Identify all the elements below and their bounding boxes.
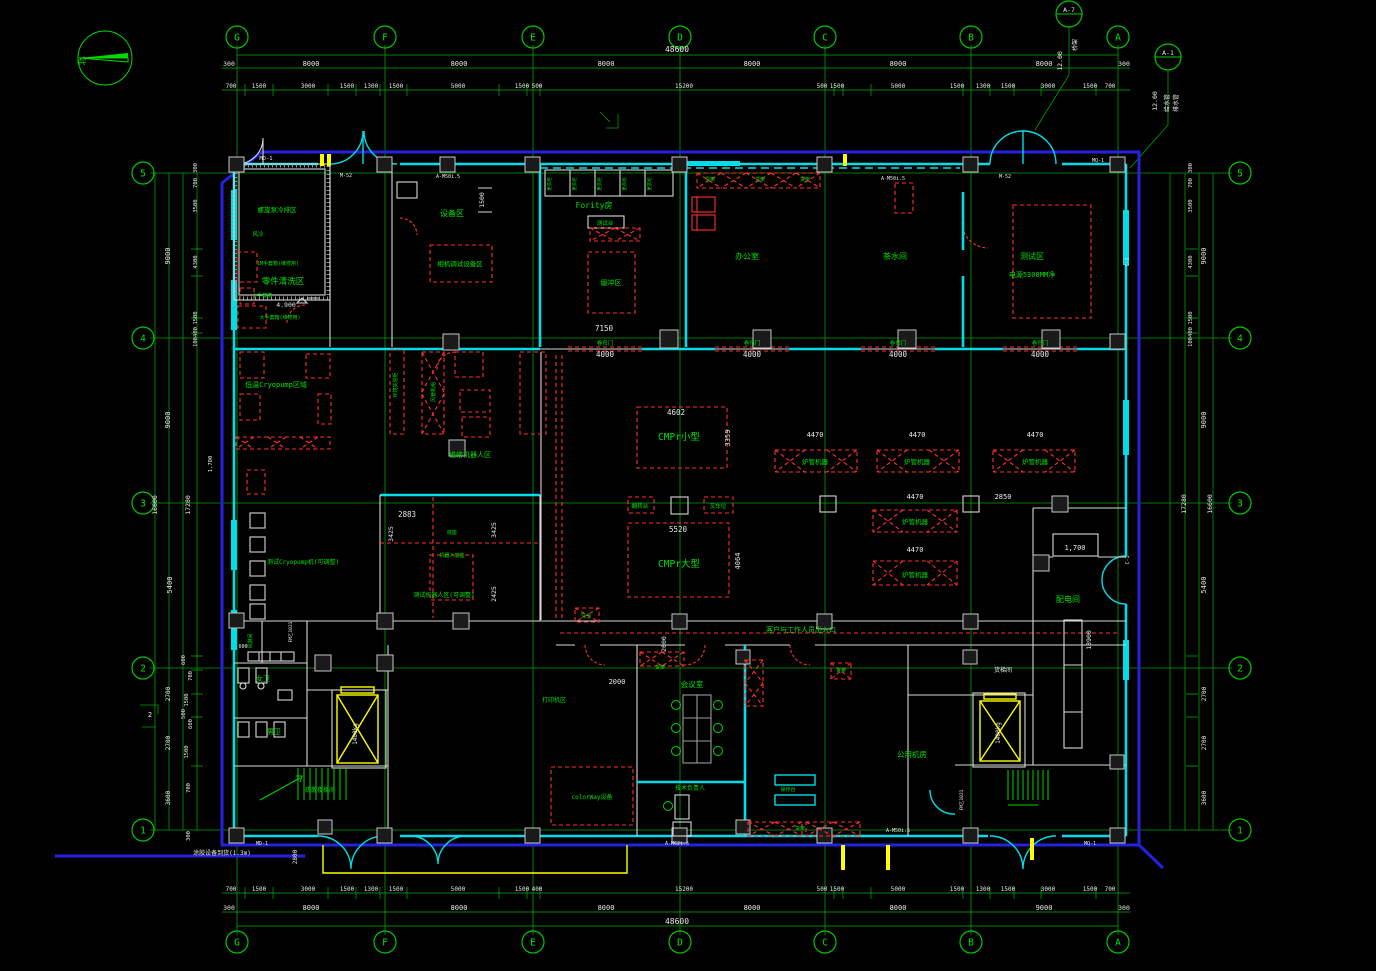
plan-label: 1500 [1083, 83, 1098, 90]
plan-label: 1500 [830, 886, 845, 893]
plan-label: 1,700 [1064, 544, 1085, 552]
plan-label: 货架 [836, 667, 846, 674]
svg-text:B: B [968, 938, 974, 949]
plan-label: 2700 [165, 686, 172, 701]
plan-label: 4470 [1027, 431, 1044, 439]
plan-label: 1300 [976, 886, 991, 893]
plan-label: 1500 [389, 83, 404, 90]
plan-label: 更衣柜 [546, 177, 553, 191]
plan-label: 8000 [744, 60, 761, 68]
plan-label: 9000 [1036, 904, 1053, 912]
plan-label: 1500 [184, 693, 190, 706]
plan-label: 5000 [451, 83, 466, 90]
plan-label: 1500 [515, 83, 530, 90]
plan-label: 1500 [389, 886, 404, 893]
plan-label: 炉管机器 [902, 570, 929, 579]
plan-label: 1300 [364, 886, 379, 893]
plan-label: 300 [1118, 60, 1130, 68]
plan-label: 维修机器人区 [449, 450, 491, 459]
stairs-bottom-right [1008, 770, 1048, 805]
grid-bubble: E [522, 26, 544, 48]
svg-text:D: D [677, 33, 683, 44]
plan-label: 1500 [340, 83, 355, 90]
plan-label: 茶水间 [883, 251, 907, 261]
plan-label: C-1 [1125, 257, 1131, 266]
plan-label: 1500 [252, 83, 267, 90]
plan-label: 排水管 [1172, 94, 1180, 112]
plan-label: 测试Cryopump机(可调整) [267, 558, 339, 566]
plan-label: 配电间 [1056, 594, 1080, 604]
plan-label: MQ-1 [1092, 158, 1104, 164]
plan-label: 8000 [890, 904, 907, 912]
plan-label: 1500 [252, 886, 267, 893]
window [680, 161, 740, 166]
plan-label: 9000 [164, 248, 172, 265]
plan-label: 电源5300MM净 [1009, 270, 1055, 279]
plan-label: 测试机器人区(可调整) [413, 591, 474, 599]
plan-label: 缓冲区 [601, 278, 622, 287]
svg-text:A: A [1115, 938, 1121, 949]
plan-label: 1500 [950, 886, 965, 893]
svg-text:5: 5 [140, 169, 146, 180]
plan-label: 更衣柜 [646, 177, 653, 191]
plan-label: 货梯间 [994, 666, 1012, 674]
plan-label: 9000 [164, 412, 172, 429]
plan-label: 技术负责人 [675, 784, 705, 792]
plan-label: 4000 [889, 350, 908, 359]
svg-text:B: B [968, 33, 974, 44]
svg-text:2: 2 [140, 664, 146, 675]
plan-label: 货架 [655, 664, 665, 671]
svg-text:A: A [1115, 33, 1121, 44]
plan-label: 4300 [1188, 255, 1194, 268]
plan-label: 3000 [301, 83, 316, 90]
plan-label: 500 [181, 709, 187, 719]
svg-text:4: 4 [140, 334, 146, 345]
plan-label: 风管机组 [430, 382, 437, 402]
canopy-line [323, 845, 627, 873]
plan-label: 15200 [675, 83, 693, 90]
grid-bubble: B [960, 26, 982, 48]
plan-label: 1500 [1001, 886, 1016, 893]
plan-label: 17280 [1180, 494, 1188, 514]
plan-label: 1300 [976, 83, 991, 90]
plan-label: 客户与工作人员出入口 [766, 625, 836, 634]
doors [237, 131, 1126, 869]
plan-label: 炉管机器 [904, 457, 931, 466]
plan-label: 48600 [665, 45, 689, 54]
plan-label: 500 [532, 83, 543, 90]
plan-label: 货架 [705, 176, 715, 183]
window [231, 520, 237, 570]
plan-label: 3000 [1041, 83, 1056, 90]
plan-label: 1400kg [995, 722, 1002, 744]
plan-label: Fority房 [576, 200, 613, 210]
plan-label: 400 [532, 886, 543, 893]
plan-label: 700 [226, 886, 237, 893]
plan-label: A-M62i.5 [665, 841, 689, 847]
plan-label: 1500 [1083, 886, 1098, 893]
plan-label: 炉管机器 [1022, 457, 1049, 466]
plan-label: 更衣柜 [571, 177, 578, 191]
plan-label: 2700 [1201, 735, 1208, 750]
plan-label: 疏散楼梯间 [305, 786, 335, 794]
plan-label: 3425 [387, 526, 395, 542]
plan-label: 4470 [907, 546, 924, 554]
plan-label: 7150 [595, 324, 614, 333]
plan-label: 5000 [891, 886, 906, 893]
stairs-bottom-left [260, 768, 346, 800]
plan-label: 叉车 [580, 612, 592, 620]
plan-label: 12.00 [1151, 91, 1159, 111]
plan-label: 炉管机器 [802, 457, 829, 466]
plan-label: A-M50i.5 [436, 174, 460, 180]
plan-label: 3500 [1188, 199, 1194, 212]
svg-text:F: F [382, 938, 388, 949]
plan-label: 4000 [1031, 350, 1050, 359]
plan-label: 打印机区 [542, 696, 566, 704]
grid-bubble: 1 [1229, 819, 1251, 841]
plan-label: 700 [188, 671, 194, 681]
svg-text:F: F [382, 33, 388, 44]
plan-label: 测试台 [597, 219, 614, 227]
plan-label: 男卫 [267, 728, 281, 736]
plan-label: 大手套箱(维修用) [259, 314, 300, 321]
grid-bubble: A [1107, 26, 1129, 48]
plan-label: C-1 [1125, 555, 1131, 564]
plan-label: 卷帘门 [1032, 339, 1049, 347]
plan-label: 9000 [1200, 412, 1208, 429]
plan-label: M-52 [340, 173, 352, 179]
plan-label: colorWay设备 [572, 793, 613, 801]
plan-label: 100 [1188, 337, 1194, 347]
plan-label: 48600 [665, 917, 689, 926]
plan-label: 3425 [490, 522, 498, 538]
plan-label: 4470 [907, 493, 924, 501]
section-marker: A-1 [1155, 44, 1181, 70]
floor-plan-canvas: GGFFEEDDCCBBAA5544332211 A-7A-1 48600300… [0, 0, 1376, 971]
plan-label: 300 [186, 831, 192, 841]
plan-label: 12.00 [1056, 51, 1064, 71]
plan-label: 叉车位 [710, 502, 727, 510]
grid-bubble: 3 [1229, 492, 1251, 514]
plan-label: 3000 [1041, 886, 1056, 893]
plan-label: 4064 [734, 553, 742, 570]
plan-label: 1500 [478, 192, 486, 208]
plan-label: 更衣柜 [621, 177, 628, 191]
plan-label: 8000 [303, 904, 320, 912]
plan-label: 700 [1105, 886, 1116, 893]
grid-bubble: 4 [1229, 327, 1251, 349]
plan-label: 8000 [598, 60, 615, 68]
plan-label: 4000 [743, 350, 762, 359]
plan-label: 3500 [193, 199, 199, 212]
plan-label: 螺旋泵冷排区 [258, 205, 298, 214]
plan-label: 15200 [675, 886, 693, 893]
plan-label: 2850 [995, 493, 1012, 501]
plan-label: 8000 [598, 904, 615, 912]
conference-table [672, 695, 723, 763]
plan-label: 桥架 [1071, 39, 1079, 51]
plan-label: 500 [817, 886, 828, 893]
plan-label: 卷帘门 [890, 339, 907, 347]
plan-label: 1M手套箱(维修用) [257, 260, 299, 267]
plan-label: 设备区 [440, 208, 464, 218]
plan-label: 涂胶设备到货(1.3m) [193, 849, 251, 857]
plan-label: 1500 [830, 83, 845, 90]
plan-label: 1500 [950, 83, 965, 90]
plan-label: 5000 [451, 886, 466, 893]
plan-label: 300 [1188, 163, 1194, 173]
grid-bubble: 2 [1229, 657, 1251, 679]
plan-label: 测试区 [1020, 251, 1044, 261]
plan-label: 1400kg [352, 723, 359, 745]
plan-label: 5520 [669, 525, 688, 534]
plan-label: 办公室 [735, 251, 759, 261]
plan-label: MD-1 [256, 841, 268, 847]
plan-label: 300 [193, 163, 199, 173]
grid-bubble: 5 [1229, 162, 1251, 184]
plan-label: 4000 [596, 350, 615, 359]
plan-label: 2000 [660, 636, 668, 652]
plan-label: 3600 [1201, 790, 1208, 805]
plan-label: 2700 [1201, 686, 1208, 701]
plan-label: 600 [188, 719, 194, 729]
svg-text:3: 3 [1237, 499, 1243, 510]
plan-label: 1500 [515, 886, 530, 893]
svg-text:A-7: A-7 [1063, 6, 1075, 14]
plan-label: 4602 [667, 408, 685, 417]
plan-label: 8000 [451, 904, 468, 912]
plan-label: 翻转台 [632, 502, 649, 510]
plan-label: 2700 [165, 735, 172, 750]
grid-bubble: G [226, 26, 248, 48]
plan-label: 4470 [909, 431, 926, 439]
plan-label: 300 [223, 904, 235, 912]
plan-label: 4300 [193, 255, 199, 268]
svg-text:G: G [234, 938, 240, 949]
plan-label: 零件清洗区 [262, 276, 305, 287]
plan-label: MD-1 [259, 156, 272, 162]
plan-label: 1500 [184, 745, 190, 758]
plan-label: 8000 [1036, 60, 1053, 68]
plan-label: 会议室 [681, 679, 704, 689]
plan-label: 16600 [151, 495, 159, 515]
svg-text:1: 1 [140, 826, 146, 837]
plan-label: 3359 [724, 430, 732, 447]
plan-label: 9000 [1200, 248, 1208, 265]
plan-label: 4470 [807, 431, 824, 439]
plan-label: 2883 [398, 510, 416, 519]
plan-label: 给水管 [1163, 94, 1171, 112]
plan-label: 2425 [490, 586, 498, 602]
svg-text:C: C [822, 33, 828, 44]
grid-bubble: F [374, 26, 396, 48]
plan-label: 2800 [292, 849, 299, 864]
svg-text:3: 3 [140, 499, 146, 510]
plan-label: 1.700 [208, 456, 214, 473]
grid-bubble: C [814, 26, 836, 48]
section-marker: A-7 [1056, 1, 1082, 27]
plan-label: 5400 [1200, 577, 1208, 594]
plan-label: 8000 [744, 904, 761, 912]
svg-text:D: D [677, 938, 683, 949]
plan-label: 400 [1188, 327, 1194, 337]
plan-label: 17280 [184, 495, 192, 515]
plan-label: 北 [77, 56, 88, 65]
plan-label: 13900 [1085, 630, 1093, 650]
plan-label: 600 [181, 655, 187, 665]
plan-label: 环境实验柜 [392, 372, 399, 397]
window [1123, 210, 1129, 265]
cad-floor-plan: GGFFEEDDCCBBAA5544332211 A-7A-1 48600300… [0, 0, 1376, 971]
plan-label: A-M50i.5 [881, 176, 905, 182]
plan-label: 2000 [609, 678, 626, 686]
plan-label: 卷帘门 [597, 339, 614, 347]
plan-label: 700 [226, 83, 237, 90]
plan-label: 8000 [303, 60, 320, 68]
plan-label: 小手套箱 [252, 292, 272, 299]
plan-label: 100 [193, 337, 199, 347]
plan-label: 1300 [364, 83, 379, 90]
plan-label: FM乙1021 [958, 789, 965, 810]
plan-label: 8000 [451, 60, 468, 68]
plan-label: 炉管机器 [902, 517, 929, 526]
plan-label: 600 [238, 644, 247, 650]
plan-label: 1500 [1001, 83, 1016, 90]
plan-label: 8000 [890, 60, 907, 68]
plan-label: 女卫 [256, 674, 270, 683]
plan-label: 700 [1188, 178, 1194, 188]
plan-label: FM乙1021 [287, 621, 294, 642]
plan-label: 相机调试设备区 [437, 259, 483, 268]
svg-text:1: 1 [1237, 826, 1243, 837]
plan-label: 2 [148, 711, 152, 719]
plan-label: 机器人底座 [439, 552, 464, 559]
svg-text:5: 5 [1237, 169, 1243, 180]
plan-label: A-M50i.5 [886, 828, 910, 834]
plan-label: 400 [193, 327, 199, 337]
svg-text:4: 4 [1237, 334, 1243, 345]
plan-label: 500 [817, 83, 828, 90]
plan-label: 1500 [193, 311, 199, 324]
window [1123, 640, 1129, 680]
plan-label: 300 [1118, 904, 1130, 912]
plan-label: 货架 [795, 825, 805, 832]
svg-text:A-1: A-1 [1162, 49, 1174, 57]
plan-label: 5400 [166, 577, 174, 594]
plan-label: 操作台 [780, 786, 795, 793]
svg-text:G: G [234, 33, 240, 44]
plan-label: 更衣柜 [596, 177, 603, 191]
plan-label: 底座 [447, 529, 457, 536]
plan-label: 风冷 [252, 230, 264, 238]
plan-label: 风淋间 [247, 633, 254, 648]
plan-label: 4.900 [276, 301, 296, 309]
plan-label: 货架 [800, 176, 810, 183]
plan-label: 卷帘门 [744, 339, 761, 347]
svg-text:E: E [530, 938, 536, 949]
window [1123, 400, 1129, 455]
svg-text:2: 2 [1237, 664, 1243, 675]
plan-label: M-52 [999, 174, 1011, 180]
plan-label: 300 [223, 60, 235, 68]
plan-label: CMPr大型 [658, 558, 700, 570]
plan-label: 700 [1105, 83, 1116, 90]
plan-label: 700 [186, 783, 192, 793]
plan-label: 700 [193, 178, 199, 188]
plan-label: 货架 [755, 176, 765, 183]
plan-label: 1500 [1188, 311, 1194, 324]
plan-label: MQ-1 [1084, 841, 1096, 847]
plan-label: 5000 [891, 83, 906, 90]
plan-label: 3000 [301, 886, 316, 893]
plan-label: 低温Cryopump区域 [245, 380, 307, 389]
plan-label: 3600 [165, 790, 172, 805]
svg-text:C: C [822, 938, 828, 949]
plan-label: 公用机房 [897, 749, 927, 759]
plan-label: 1500 [340, 886, 355, 893]
plan-label: CMPr小型 [658, 432, 700, 443]
svg-text:E: E [530, 33, 536, 44]
plan-label: 16600 [1206, 494, 1214, 514]
